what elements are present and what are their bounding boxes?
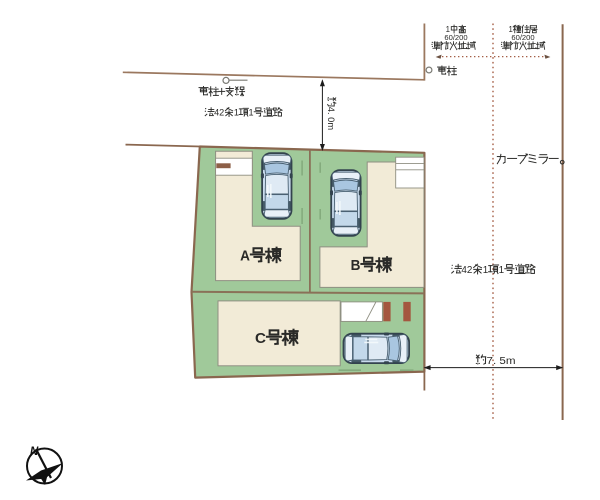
- svg-text:N: N: [30, 446, 39, 458]
- svg-text:1: 1: [483, 265, 489, 276]
- svg-text:7. 5m: 7. 5m: [487, 356, 516, 367]
- svg-text:B: B: [351, 258, 361, 274]
- svg-text:60/200: 60/200: [444, 33, 467, 42]
- svg-text:4. 0m: 4. 0m: [326, 107, 336, 131]
- svg-text:42: 42: [461, 265, 472, 276]
- svg-text:42: 42: [214, 108, 224, 118]
- svg-text:C: C: [255, 330, 266, 347]
- svg-text:A: A: [240, 249, 250, 265]
- svg-text:60/200: 60/200: [511, 33, 534, 42]
- svg-text:1: 1: [499, 265, 505, 276]
- svg-text:1: 1: [234, 108, 239, 118]
- svg-text:1: 1: [249, 108, 254, 118]
